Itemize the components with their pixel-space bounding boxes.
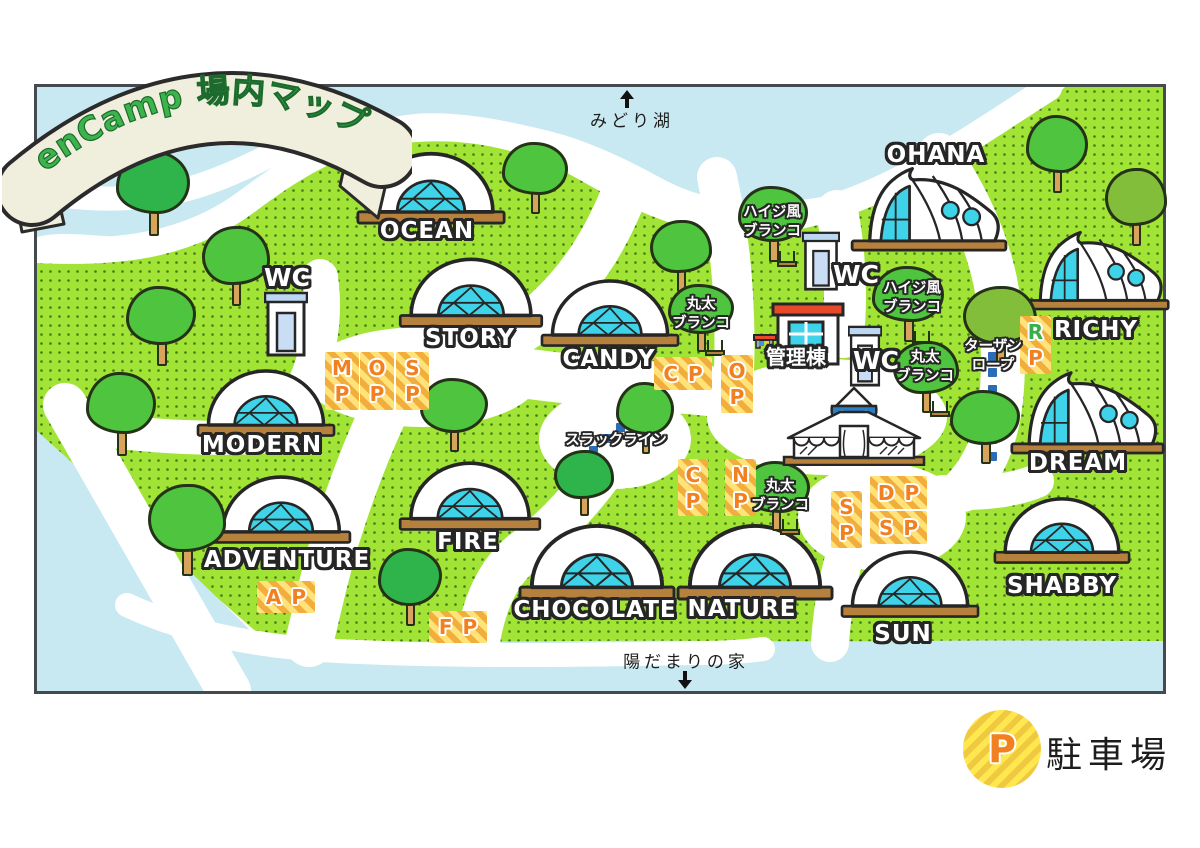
label-slackline: スラックライン (565, 432, 667, 451)
parking-sign-letter: M (332, 358, 352, 378)
tree-crown (1105, 168, 1167, 226)
south-arrow-icon (678, 680, 692, 689)
parking-sign-rp: RP (1020, 316, 1051, 374)
parking-sign-letter: S (839, 497, 853, 517)
north-label: みどり湖 (590, 107, 674, 132)
label-wc-ohana: WC (833, 259, 879, 291)
tree-crown (650, 220, 712, 273)
north-arrow-icon (620, 90, 634, 99)
parking-sign-letter: O (368, 358, 385, 378)
parking-sign-sp-sun: SP (831, 491, 862, 548)
label-wc-admin: WC (853, 345, 899, 377)
tree (202, 226, 270, 306)
tree-crown (126, 286, 196, 345)
parking-sign-letter: S (405, 358, 419, 378)
south-arrow-stem (683, 671, 687, 680)
parking-sign-letter: P (688, 364, 703, 384)
swing-icon (780, 519, 800, 535)
tree (502, 142, 568, 214)
tent-label-candy: CANDY (562, 346, 655, 372)
parking-sign-letter: C (663, 364, 678, 384)
label-haiji-swing-east: ハイジ風 ブランコ (883, 279, 941, 316)
parking-sign-letter: P (686, 491, 701, 511)
parking-sign-letter: P (839, 523, 854, 543)
parking-legend-icon: P (963, 710, 1041, 788)
tree (126, 286, 196, 366)
title-banner: enCamp 場内マップ (2, 18, 412, 238)
parking-sign-fp: FP (429, 611, 487, 643)
parking-sign-letter: P (370, 384, 385, 404)
parking-sign-cp-south: CP (678, 459, 708, 516)
tree-crown (378, 548, 442, 606)
parking-sign-ap: AP (257, 581, 315, 613)
tent-label-adventure: ADVENTURE (204, 547, 370, 573)
parking-sign-sp-shabby: SP (870, 511, 927, 544)
parking-sign-letter: S (879, 518, 893, 538)
parking-legend-symbol: P (988, 727, 1016, 771)
parking-sign-letter: P (463, 617, 478, 637)
tree-crown (554, 450, 614, 499)
tree (1026, 115, 1088, 193)
tent-label-story: STORY (425, 325, 515, 351)
tree (86, 372, 156, 456)
parking-sign-letter: D (878, 483, 895, 503)
label-admin-label: 管理棟 (766, 345, 826, 371)
tree (554, 450, 614, 516)
tree (950, 390, 1020, 464)
parking-sign-letter: N (732, 465, 749, 485)
tree-crown (148, 484, 226, 552)
parking-sign-letter: P (903, 518, 918, 538)
campsite-map-page: OCEAN STORY CANDY MODERN ADVENTURE FIRE … (0, 0, 1200, 848)
tent-label-fire: FIRE (437, 529, 499, 555)
tent-label-ohana: OHANA (887, 142, 986, 168)
tree-crown (86, 372, 156, 434)
parking-sign-mp: MP (325, 352, 359, 410)
tent-label-shabby: SHABBY (1007, 573, 1117, 599)
parking-legend-label: 駐車場 (1046, 726, 1172, 778)
parking-sign-letter: P (335, 384, 350, 404)
tent-label-sun: SUN (874, 621, 932, 647)
tent-label-richy: RICHY (1054, 317, 1138, 343)
parking-sign-letter: O (728, 361, 745, 381)
swing-icon (705, 340, 725, 356)
parking-sign-op-center: OP (721, 355, 753, 413)
parking-sign-letter: A (266, 587, 281, 607)
tent-label-dream: DREAM (1029, 450, 1127, 476)
parking-sign-letter: P (291, 587, 306, 607)
wc-building-north (264, 291, 308, 357)
swing-icon (777, 251, 797, 267)
yurt (782, 386, 926, 466)
parking-sign-letter: P (730, 387, 745, 407)
parking-sign-letter: R (1028, 322, 1043, 342)
parking-sign-letter: P (733, 491, 748, 511)
label-haiji-swing-north: ハイジ風 ブランコ (743, 203, 801, 240)
parking-sign-letter: P (405, 384, 420, 404)
tree-crown (1026, 115, 1088, 173)
parking-sign-letter: C (686, 465, 701, 485)
label-log-swing-candy: 丸太 ブランコ (672, 295, 730, 332)
parking-sign-dp: DP (870, 476, 927, 509)
label-wc-north: WC (264, 262, 310, 294)
parking-sign-op-west: OP (360, 352, 394, 410)
parking-sign-letter: P (904, 483, 919, 503)
tree (420, 378, 488, 452)
south-label: 陽だまりの家 (623, 648, 749, 673)
tree (650, 220, 712, 292)
label-log-swing-admin: 丸太 ブランコ (896, 348, 954, 385)
tent-label-modern: MODERN (202, 432, 322, 458)
parking-sign-cp-candy: CP (654, 357, 712, 390)
tent-label-chocolate: CHOCOLATE (513, 597, 676, 623)
tree-crown (502, 142, 568, 195)
label-tarzan-rope: ターザン ロープ (964, 337, 1022, 374)
label-log-swing-nature: 丸太 ブランコ (751, 477, 809, 514)
tree-crown (420, 378, 488, 433)
parking-sign-sp-west: SP (396, 352, 429, 410)
tree-crown (950, 390, 1020, 445)
parking-sign-letter: F (439, 617, 453, 637)
tree (1105, 168, 1167, 246)
tent-label-nature: NATURE (687, 596, 796, 622)
parking-sign-letter: P (1028, 348, 1043, 368)
swing-icon (930, 401, 950, 417)
